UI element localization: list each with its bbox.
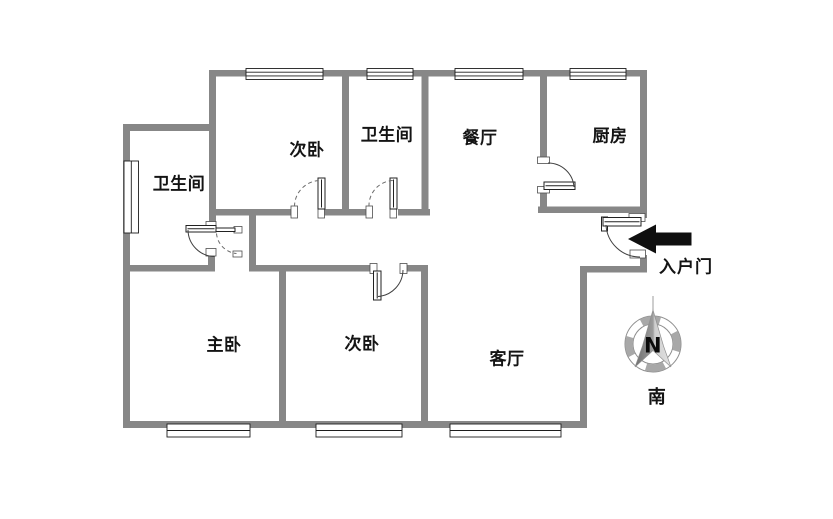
- window-dining: [455, 69, 523, 80]
- door-arc-bedroom-top: [295, 181, 321, 207]
- wall-vestibule-right: [249, 213, 256, 271]
- wall-right-outer-upper: [640, 70, 647, 218]
- wall-living-right: [580, 266, 587, 426]
- wall-bathroom-top-right: [422, 70, 429, 216]
- windows: [124, 69, 626, 438]
- jamb: [366, 206, 373, 218]
- door-arc-vestibule: [217, 234, 237, 254]
- entrance-label: 入户门: [659, 260, 713, 277]
- door-leaf-kitchen: [544, 182, 575, 190]
- window-bedroom-bottom: [316, 424, 402, 437]
- compass-north-label: N: [644, 336, 662, 357]
- window-bedroom-top: [246, 69, 323, 80]
- room-label-bedroom-second-bottom: 次卧: [345, 337, 380, 354]
- door-leaf-bathroom-left: [186, 226, 216, 233]
- door-leaf-bedroom-bottom: [374, 271, 382, 300]
- room-label-bathroom-top: 卫生间: [361, 128, 414, 145]
- window-living-room: [450, 424, 561, 437]
- door-leaf-entrance: [602, 217, 642, 231]
- wall-master-top: [123, 265, 215, 272]
- door-leaf-bathroom-top: [390, 178, 397, 209]
- door-arc-bedroom-bottom: [378, 270, 403, 297]
- wall-bedroom-top-right: [342, 70, 349, 216]
- jamb: [538, 157, 550, 164]
- jamb: [233, 251, 242, 257]
- door-leaf-vestibule: [216, 228, 235, 232]
- room-label-dining-room: 餐厅: [463, 131, 498, 148]
- wall-bedroom-bottom-right: [421, 268, 428, 424]
- window-bathroom-top: [367, 69, 413, 80]
- wall-master-right: [279, 268, 286, 424]
- room-label-bedroom-second-top: 次卧: [290, 143, 325, 160]
- jamb: [206, 249, 216, 257]
- room-label-master-bedroom: 主卧: [207, 338, 242, 355]
- wall-bathroom-left-right-upper: [209, 70, 216, 222]
- door-leaf-bedroom-top: [318, 178, 325, 209]
- walls: [123, 70, 647, 428]
- entrance-arrow-icon: [628, 225, 692, 254]
- room-label-kitchen: 厨房: [593, 129, 628, 146]
- room-label-living-room: 客厅: [490, 352, 525, 369]
- wall-corridor-bottom-a: [249, 265, 375, 272]
- room-label-bathroom-left: 卫生间: [153, 177, 206, 194]
- wall-kitchen-left-upper: [540, 70, 547, 162]
- window-master-bedroom: [167, 424, 250, 437]
- jamb: [400, 264, 407, 274]
- compass-south-label: 南: [648, 389, 667, 407]
- wall-bathroom-left-top: [123, 124, 216, 131]
- window-kitchen: [570, 69, 626, 80]
- floor-plan: 卫生间 次卧 卫生间 餐厅 厨房 主卧 次卧 客厅 入户门 N 南: [0, 0, 833, 519]
- window-bathroom-left: [124, 161, 139, 233]
- jamb: [291, 206, 298, 218]
- wall-kitchen-bottom: [538, 207, 647, 214]
- wall-entry-bottom: [583, 266, 647, 273]
